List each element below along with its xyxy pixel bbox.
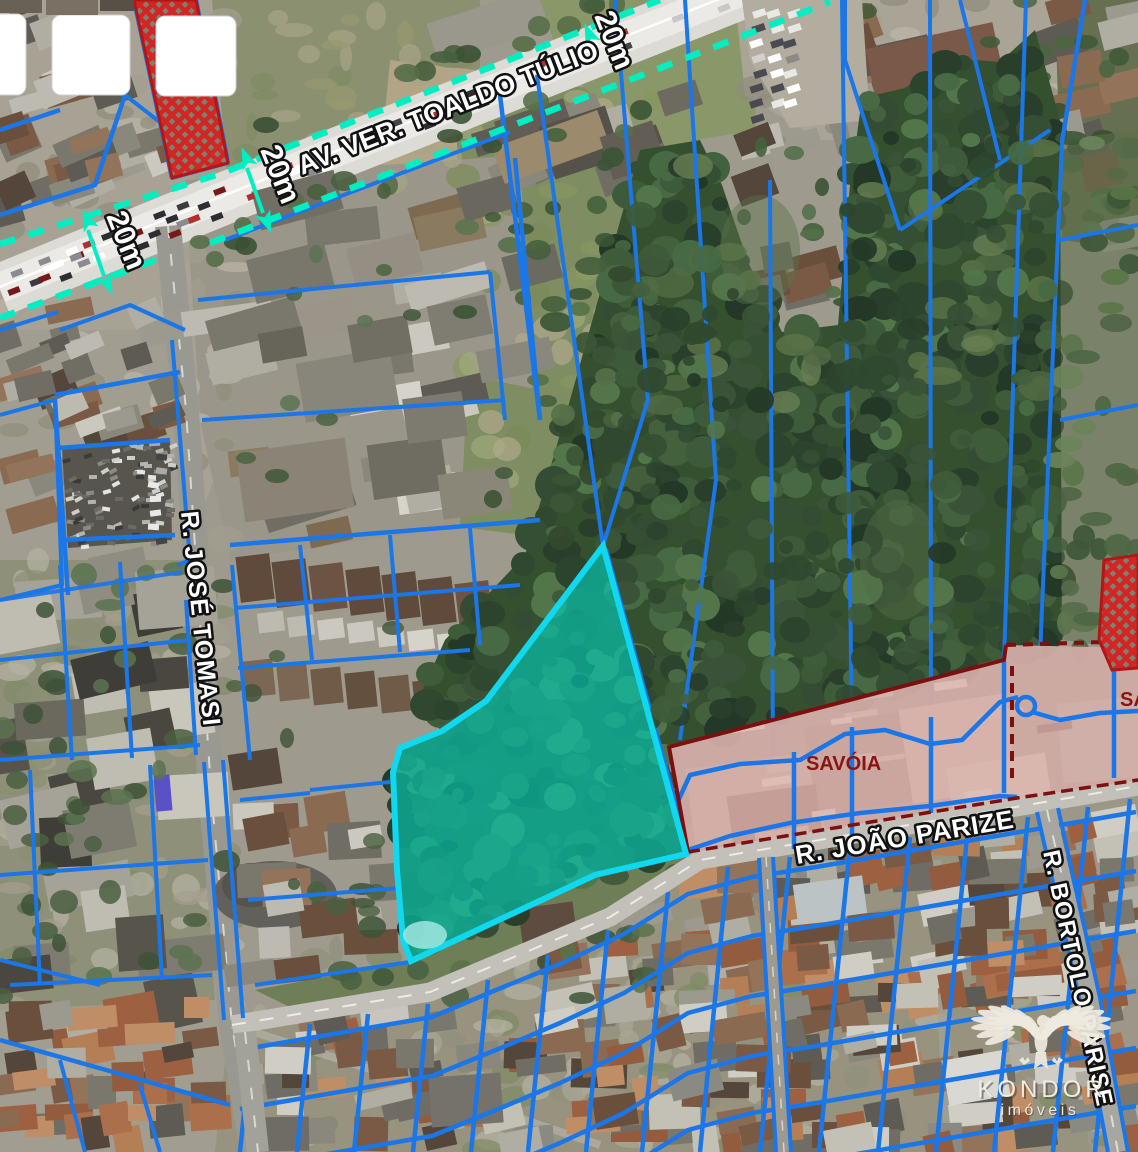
svg-text:KONDOR: KONDOR [977,1076,1106,1103]
svg-text:imóveis: imóveis [1001,1102,1080,1119]
svg-text:SAVÓIA: SAVÓIA [806,751,881,775]
svg-text:SA: SA [1120,689,1138,711]
